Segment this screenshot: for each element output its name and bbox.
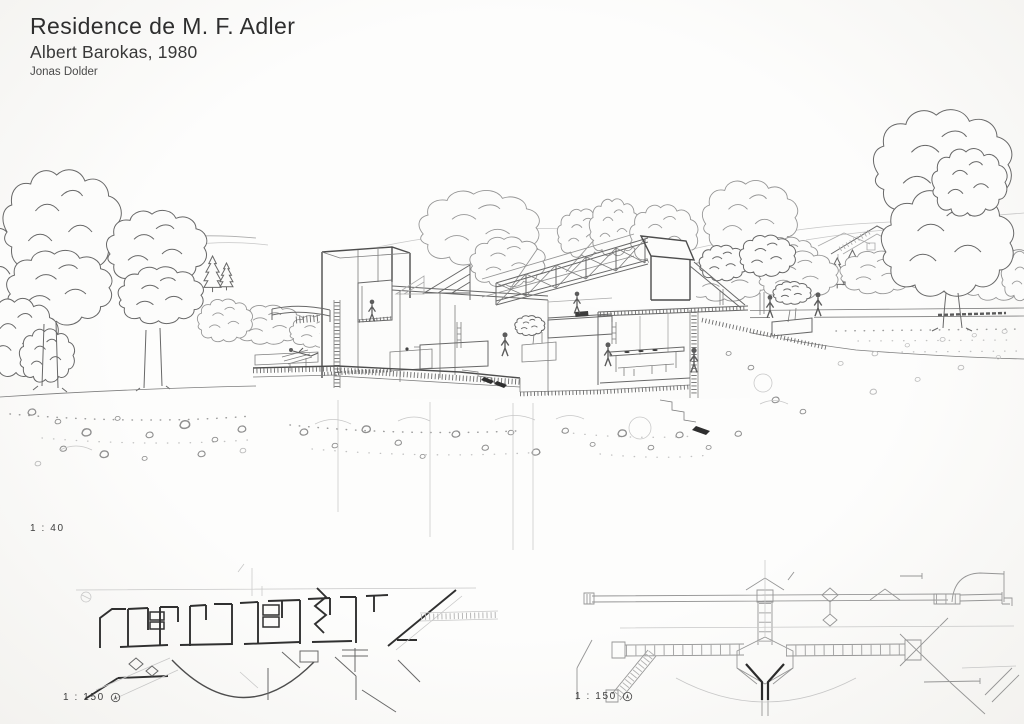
projection-lines [338,400,533,550]
page-title: Residence de M. F. Adler [30,14,295,40]
roof-plan-scale-label: 1 : 150 [575,691,633,702]
perspective-scale-label: 1 : 40 [30,523,65,534]
presentation-board: Residence de M. F. Adler Albert Barokas,… [0,0,1024,724]
plan-arc [172,660,314,698]
north-arrow-icon [622,691,633,702]
terrace-person [766,295,773,318]
floor-plan-scale-text: 1 : 150 [63,692,105,703]
walking-person [814,292,822,316]
roof-plan-drawing [577,560,1019,716]
floor-plan-scale-label: 1 : 150 [63,692,121,703]
floor-plan-drawing [76,564,498,712]
pine-tree [220,263,233,290]
author-line: Jonas Dolder [30,66,295,78]
north-arrow-icon [110,692,121,703]
planter-plant [773,282,811,305]
pine-tree [204,256,221,292]
title-block: Residence de M. F. Adler Albert Barokas,… [30,14,295,78]
roof-plan-scale-text: 1 : 150 [575,691,617,702]
indoor-plant [515,316,545,336]
plan-inner-partitions [129,648,420,712]
architectural-drawing [0,0,1024,724]
perspective-scale-text: 1 : 40 [30,523,65,534]
architect-line: Albert Barokas, 1980 [30,42,295,63]
